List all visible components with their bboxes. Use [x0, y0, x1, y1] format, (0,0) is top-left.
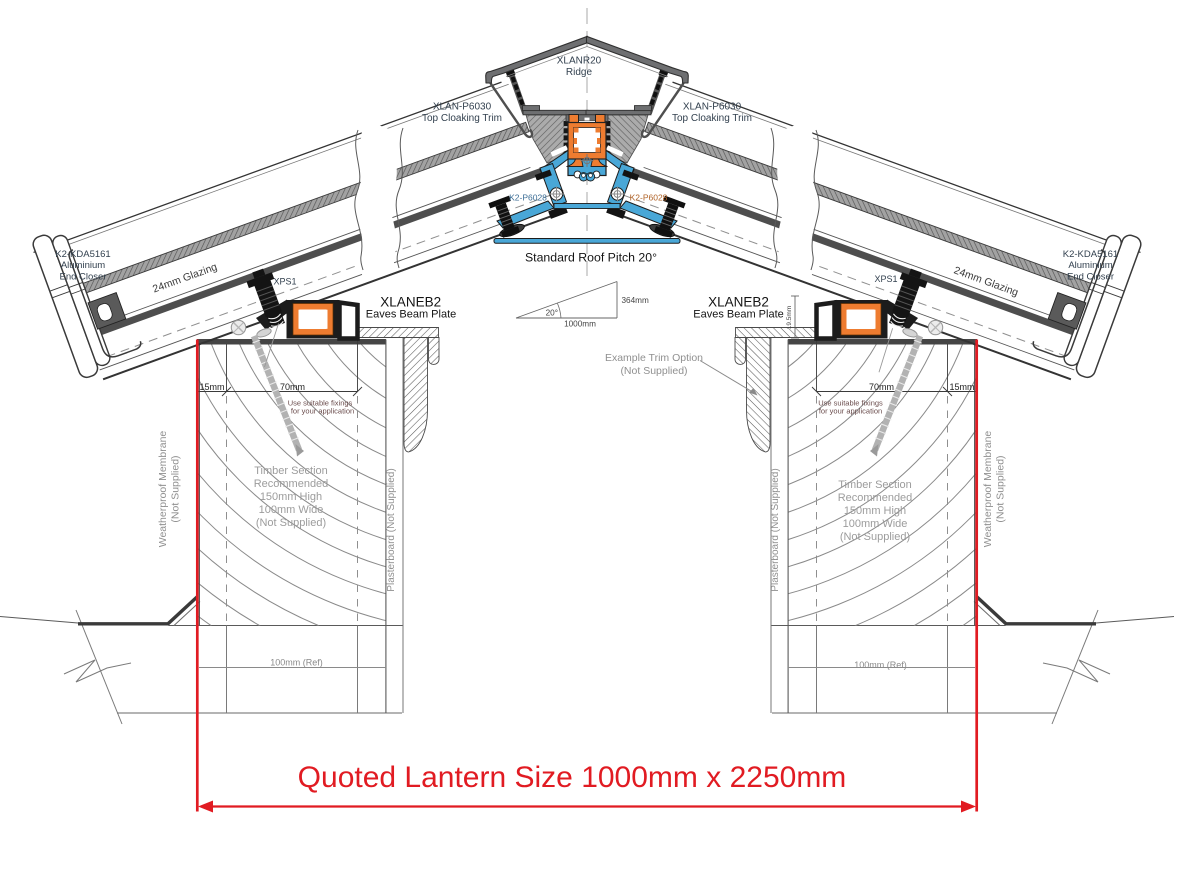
svg-text:Quoted Lantern Size 1000mm x 2: Quoted Lantern Size 1000mm x 2250mm [298, 761, 847, 794]
svg-text:Weatherproof Membrane: Weatherproof Membrane [157, 431, 169, 548]
svg-text:15mm: 15mm [199, 382, 224, 392]
svg-text:1000mm: 1000mm [564, 320, 596, 329]
svg-text:Plasterboard (Not Supplied): Plasterboard (Not Supplied) [770, 468, 781, 591]
svg-text:Example Trim Option: Example Trim Option [605, 352, 703, 364]
svg-text:Recommended: Recommended [838, 492, 913, 504]
svg-text:K2-KDA5161: K2-KDA5161 [1063, 249, 1118, 260]
svg-text:Plasterboard (Not Supplied): Plasterboard (Not Supplied) [386, 468, 397, 591]
svg-text:19.5mm: 19.5mm [786, 306, 793, 329]
svg-text:Ridge: Ridge [566, 67, 593, 78]
svg-text:Eaves Beam Plate: Eaves Beam Plate [366, 309, 457, 321]
svg-text:Top Cloaking Trim: Top Cloaking Trim [422, 113, 502, 124]
svg-text:100mm (Ref): 100mm (Ref) [854, 660, 907, 670]
svg-text:Standard Roof Pitch 20°: Standard Roof Pitch 20° [525, 251, 657, 265]
svg-text:XPS1: XPS1 [273, 277, 296, 287]
svg-text:XPS1: XPS1 [874, 274, 897, 284]
svg-text:for your application: for your application [819, 407, 882, 416]
svg-text:Recommended: Recommended [254, 478, 329, 490]
svg-text:364mm: 364mm [622, 296, 649, 305]
svg-text:(Not Supplied): (Not Supplied) [620, 365, 687, 377]
svg-text:(Not Supplied): (Not Supplied) [995, 455, 1007, 522]
svg-text:150mm High: 150mm High [844, 505, 906, 517]
svg-text:100mm Wide: 100mm Wide [843, 518, 908, 530]
svg-text:XLANR20: XLANR20 [557, 56, 602, 67]
svg-text:K2-KDA5161: K2-KDA5161 [55, 249, 110, 260]
svg-text:150mm High: 150mm High [260, 491, 322, 503]
svg-text:XLANEB2: XLANEB2 [380, 295, 441, 310]
svg-text:70mm: 70mm [869, 382, 894, 392]
svg-text:Eaves Beam Plate: Eaves Beam Plate [693, 309, 784, 321]
svg-text:Aluminium: Aluminium [1068, 260, 1112, 271]
svg-text:End Closer: End Closer [1067, 272, 1114, 283]
svg-text:XLAN-P6030: XLAN-P6030 [433, 102, 492, 113]
svg-text:100mm (Ref): 100mm (Ref) [270, 658, 323, 668]
svg-text:(Not Supplied): (Not Supplied) [256, 517, 326, 529]
svg-text:Timber Section: Timber Section [254, 465, 328, 477]
svg-text:XLANEB2: XLANEB2 [708, 295, 769, 310]
svg-text:End Closer: End Closer [60, 272, 107, 283]
svg-text:Aluminium: Aluminium [61, 260, 105, 271]
svg-text:100mm Wide: 100mm Wide [259, 504, 324, 516]
svg-text:20°: 20° [546, 309, 558, 318]
svg-text:(Not Supplied): (Not Supplied) [170, 455, 182, 522]
svg-text:K2-P6028: K2-P6028 [509, 193, 547, 203]
svg-text:(Not Supplied): (Not Supplied) [840, 531, 910, 543]
svg-text:Top Cloaking Trim: Top Cloaking Trim [672, 113, 752, 124]
svg-text:XLAN-P6030: XLAN-P6030 [683, 102, 742, 113]
svg-text:K2-P6028: K2-P6028 [630, 193, 668, 203]
svg-text:70mm: 70mm [280, 382, 305, 392]
svg-text:Timber Section: Timber Section [838, 479, 912, 491]
svg-text:for your application: for your application [291, 407, 354, 416]
svg-text:Weatherproof Membrane: Weatherproof Membrane [982, 431, 994, 548]
svg-text:15mm: 15mm [949, 382, 974, 392]
